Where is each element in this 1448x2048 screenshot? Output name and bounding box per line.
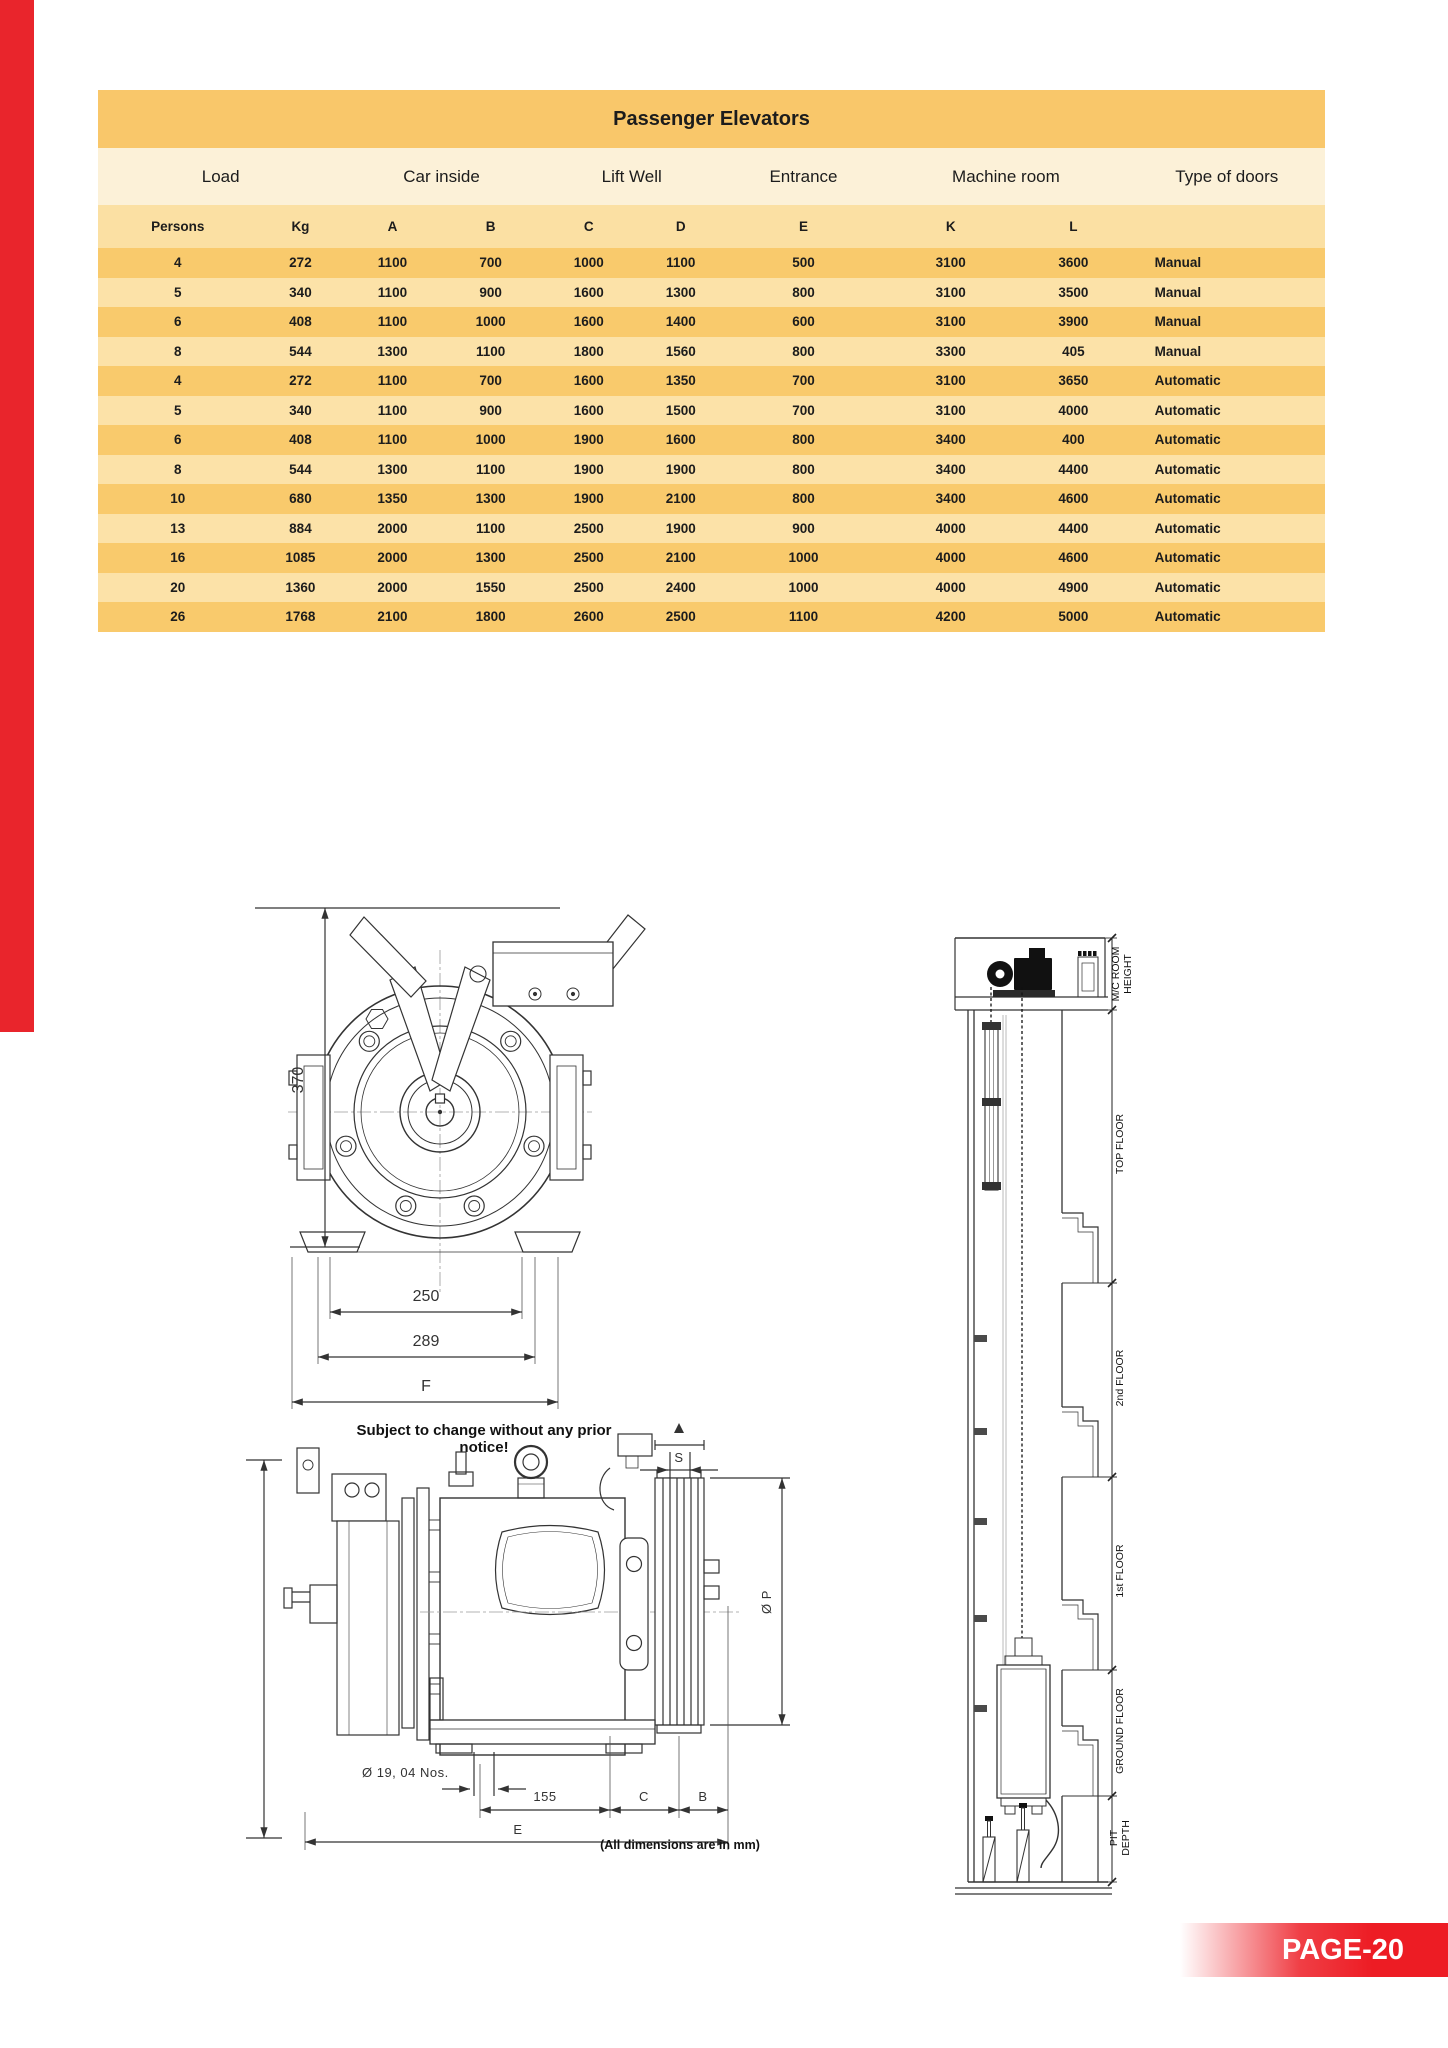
table-row: 6408110010001600140060031003900Manual [98,307,1325,337]
dim-f-label: F [421,1378,431,1395]
traction-sheave [655,1470,719,1733]
rail-brackets [974,1335,987,1712]
dim-p-label: Ø P [759,1590,774,1614]
cell-a: 2000 [343,514,441,544]
pit-buffers [955,1803,1112,1894]
left-accent-bar [0,0,34,1032]
machine-side-view-drawing: S Ø P Ø 19, 04 Nos. 155 [230,1420,800,1880]
cell-l: 5000 [1018,602,1128,632]
cell-d: 1600 [638,425,724,455]
cell-persons: 26 [98,602,258,632]
cell-l: 4600 [1018,543,1128,573]
table-row: 13884200011002500190090040004400Automati… [98,514,1325,544]
table-row: 534011009001600130080031003500Manual [98,278,1325,308]
cell-type-of-doors: Automatic [1129,396,1325,426]
cell-e: 800 [724,425,884,455]
cell-persons: 5 [98,396,258,426]
cell-type-of-doors: Automatic [1129,543,1325,573]
cell-b: 1000 [442,307,540,337]
cell-b: 1100 [442,455,540,485]
cell-persons: 8 [98,337,258,367]
units-note: (All dimensions are in mm) [580,1838,780,1852]
cell-d: 1300 [638,278,724,308]
cell-persons: 8 [98,455,258,485]
spec-table: LoadCar insideLift WellEntranceMachine r… [98,148,1325,632]
cell-k: 3400 [883,425,1018,455]
cell-k: 3400 [883,484,1018,514]
dim-b-label: B [698,1789,707,1804]
cell-e: 800 [724,455,884,485]
cell-l: 4000 [1018,396,1128,426]
table-row: 534011009001600150070031004000Automatic [98,396,1325,426]
cell-e: 700 [724,396,884,426]
cell-k: 4200 [883,602,1018,632]
table-title: Passenger Elevators [98,90,1325,148]
cell-c: 1900 [540,425,638,455]
cell-a: 1100 [343,396,441,426]
cell-l: 3900 [1018,307,1128,337]
cell-l: 405 [1018,337,1128,367]
table-row: 2013602000155025002400100040004900Automa… [98,573,1325,603]
table-row: 8544130011001900190080034004400Automatic [98,455,1325,485]
cell-persons: 20 [98,573,258,603]
pit-depth-label-2: DEPTH [1120,1820,1132,1856]
cell-kg: 1768 [258,602,344,632]
group-header-machine-room: Machine room [883,148,1128,205]
cell-b: 1300 [442,484,540,514]
terminal-box [493,942,613,1006]
cell-c: 1600 [540,366,638,396]
cell-b: 1550 [442,573,540,603]
cell-l: 4400 [1018,514,1128,544]
bottom-dims: 250 289 F [292,1257,558,1409]
table-row: 10680135013001900210080034004600Automati… [98,484,1325,514]
cell-e: 800 [724,337,884,367]
cell-e: 500 [724,248,884,278]
column-header-d: D [638,205,724,248]
cell-b: 1800 [442,602,540,632]
cell-kg: 340 [258,396,344,426]
cell-e: 600 [724,307,884,337]
cell-e: 900 [724,514,884,544]
cell-c: 1900 [540,455,638,485]
cell-kg: 272 [258,366,344,396]
cell-a: 1350 [343,484,441,514]
cell-d: 1350 [638,366,724,396]
table-row: 854413001100180015608003300405Manual [98,337,1325,367]
cell-type-of-doors: Automatic [1129,425,1325,455]
cell-l: 4900 [1018,573,1128,603]
cell-d: 2500 [638,602,724,632]
cell-type-of-doors: Manual [1129,248,1325,278]
cell-k: 4000 [883,543,1018,573]
catalog-page: Passenger Elevators LoadCar insideLift W… [0,0,1448,2048]
elevator-spec-table: Passenger Elevators LoadCar insideLift W… [98,90,1325,632]
dim-155-label: 155 [533,1789,556,1804]
cell-k: 4000 [883,514,1018,544]
cell-kg: 1085 [258,543,344,573]
cell-kg: 680 [258,484,344,514]
dim-e-label: E [513,1822,522,1837]
cell-a: 1100 [343,278,441,308]
cell-kg: 272 [258,248,344,278]
floor-landings [1062,1213,1117,1796]
column-header-k: K [883,205,1018,248]
group-header-lift-well: Lift Well [540,148,724,205]
cell-l: 400 [1018,425,1128,455]
cell-c: 1600 [540,278,638,308]
cell-type-of-doors: Automatic [1129,514,1325,544]
cell-k: 3100 [883,307,1018,337]
top-floor-label: TOP FLOOR [1114,1113,1126,1174]
cell-type-of-doors: Manual [1129,337,1325,367]
cell-a: 2100 [343,602,441,632]
hoistway-section-drawing: M/C ROOM HEIGHT TOP FLOOR 2nd FLOOR 1st … [945,930,1190,1945]
cell-d: 1900 [638,514,724,544]
cell-persons: 5 [98,278,258,308]
cell-a: 1100 [343,248,441,278]
cell-persons: 6 [98,307,258,337]
first-floor-label: 1st FLOOR [1114,1544,1126,1598]
cell-persons: 16 [98,543,258,573]
cell-kg: 544 [258,337,344,367]
group-header-load: Load [98,148,343,205]
cell-l: 3500 [1018,278,1128,308]
group-header-car-inside: Car inside [343,148,539,205]
cell-kg: 884 [258,514,344,544]
cell-d: 2100 [638,543,724,573]
cell-persons: 4 [98,366,258,396]
cell-e: 1100 [724,602,884,632]
cell-b: 1000 [442,425,540,455]
cell-c: 2500 [540,514,638,544]
cell-a: 1100 [343,307,441,337]
cell-l: 4400 [1018,455,1128,485]
column-header-persons: Persons [98,205,258,248]
cell-l: 4600 [1018,484,1128,514]
group-header-entrance: Entrance [724,148,884,205]
dim-c-label: C [639,1789,649,1804]
dim-holes: Ø 19, 04 Nos. [362,1752,526,1796]
cell-persons: 13 [98,514,258,544]
cell-type-of-doors: Manual [1129,307,1325,337]
table-row: 427211007001000110050031003600Manual [98,248,1325,278]
cell-a: 1100 [343,425,441,455]
cell-c: 1600 [540,307,638,337]
column-header-a: A [343,205,441,248]
column-header-e: E [724,205,884,248]
cell-e: 1000 [724,573,884,603]
ground-floor-label: GROUND FLOOR [1114,1688,1126,1774]
cell-b: 700 [442,248,540,278]
cell-a: 2000 [343,543,441,573]
table-body: 427211007001000110050031003600Manual5340… [98,248,1325,632]
cell-persons: 6 [98,425,258,455]
cell-d: 2100 [638,484,724,514]
group-header-row: LoadCar insideLift WellEntranceMachine r… [98,148,1325,205]
cell-c: 2500 [540,573,638,603]
group-header-type-of-doors: Type of doors [1129,148,1325,205]
cell-e: 1000 [724,543,884,573]
cell-a: 1100 [343,366,441,396]
dim-370-label: 370 [290,1067,307,1094]
table-row: 2617682100180026002500110042005000Automa… [98,602,1325,632]
cell-b: 900 [442,278,540,308]
cell-a: 1300 [343,455,441,485]
cell-b: 1300 [442,543,540,573]
cell-c: 2600 [540,602,638,632]
page-number-label: PAGE-20 [1282,1934,1404,1966]
holes-label: Ø 19, 04 Nos. [362,1765,449,1780]
cell-d: 1400 [638,307,724,337]
cell-k: 3100 [883,248,1018,278]
column-header-c: C [540,205,638,248]
dim-overall-height [246,1460,282,1838]
column-header-type-of-doors [1129,205,1325,248]
cell-e: 700 [724,366,884,396]
machine-room [955,938,1108,1010]
cell-type-of-doors: Automatic [1129,455,1325,485]
dim-sheave-diameter: Ø P [710,1478,790,1725]
cell-k: 4000 [883,573,1018,603]
cell-k: 3400 [883,455,1018,485]
table-row: 1610852000130025002100100040004600Automa… [98,543,1325,573]
column-header-kg: Kg [258,205,344,248]
page-number-banner: PAGE-20 [1180,1923,1448,1977]
column-header-row: PersonsKgABCDEKL [98,205,1325,248]
cell-d: 1100 [638,248,724,278]
column-header-b: B [442,205,540,248]
cell-d: 1900 [638,455,724,485]
dim-s-label: S [674,1450,683,1465]
table-row: 640811001000190016008003400400Automatic [98,425,1325,455]
second-floor-label: 2nd FLOOR [1114,1349,1126,1406]
cell-a: 2000 [343,573,441,603]
cell-b: 1100 [442,514,540,544]
cell-d: 1560 [638,337,724,367]
cell-type-of-doors: Automatic [1129,573,1325,603]
cell-k: 3100 [883,366,1018,396]
dim-289-label: 289 [413,1333,440,1350]
cell-c: 2500 [540,543,638,573]
column-header-l: L [1018,205,1128,248]
cell-type-of-doors: Automatic [1129,602,1325,632]
dim-250-label: 250 [413,1288,440,1305]
cell-kg: 1360 [258,573,344,603]
cell-b: 700 [442,366,540,396]
brake-drum-assembly [284,1448,440,1740]
pit-depth-label-1: PIT [1108,1829,1120,1846]
cell-persons: 4 [98,248,258,278]
cell-c: 1900 [540,484,638,514]
cell-d: 2400 [638,573,724,603]
cell-kg: 408 [258,425,344,455]
machine-front-view-drawing: 370 250 289 F [230,895,690,1420]
table-row: 427211007001600135070031003650Automatic [98,366,1325,396]
cell-b: 1100 [442,337,540,367]
cell-c: 1600 [540,396,638,426]
cell-c: 1000 [540,248,638,278]
cell-type-of-doors: Manual [1129,278,1325,308]
cell-type-of-doors: Automatic [1129,366,1325,396]
cell-k: 3300 [883,337,1018,367]
cell-kg: 408 [258,307,344,337]
cell-k: 3100 [883,396,1018,426]
cell-l: 3600 [1018,248,1128,278]
machine-room-height-label-1: M/C ROOM [1110,947,1122,1002]
cell-l: 3650 [1018,366,1128,396]
cell-a: 1300 [343,337,441,367]
cell-kg: 340 [258,278,344,308]
mounting-bracket [620,1538,648,1670]
cell-type-of-doors: Automatic [1129,484,1325,514]
cell-e: 800 [724,484,884,514]
cell-c: 1800 [540,337,638,367]
machine-room-height-label-2: HEIGHT [1122,954,1134,994]
cell-persons: 10 [98,484,258,514]
cell-k: 3100 [883,278,1018,308]
cell-e: 800 [724,278,884,308]
counterweight [982,1022,1001,1190]
cell-kg: 544 [258,455,344,485]
cell-b: 900 [442,396,540,426]
cell-d: 1500 [638,396,724,426]
